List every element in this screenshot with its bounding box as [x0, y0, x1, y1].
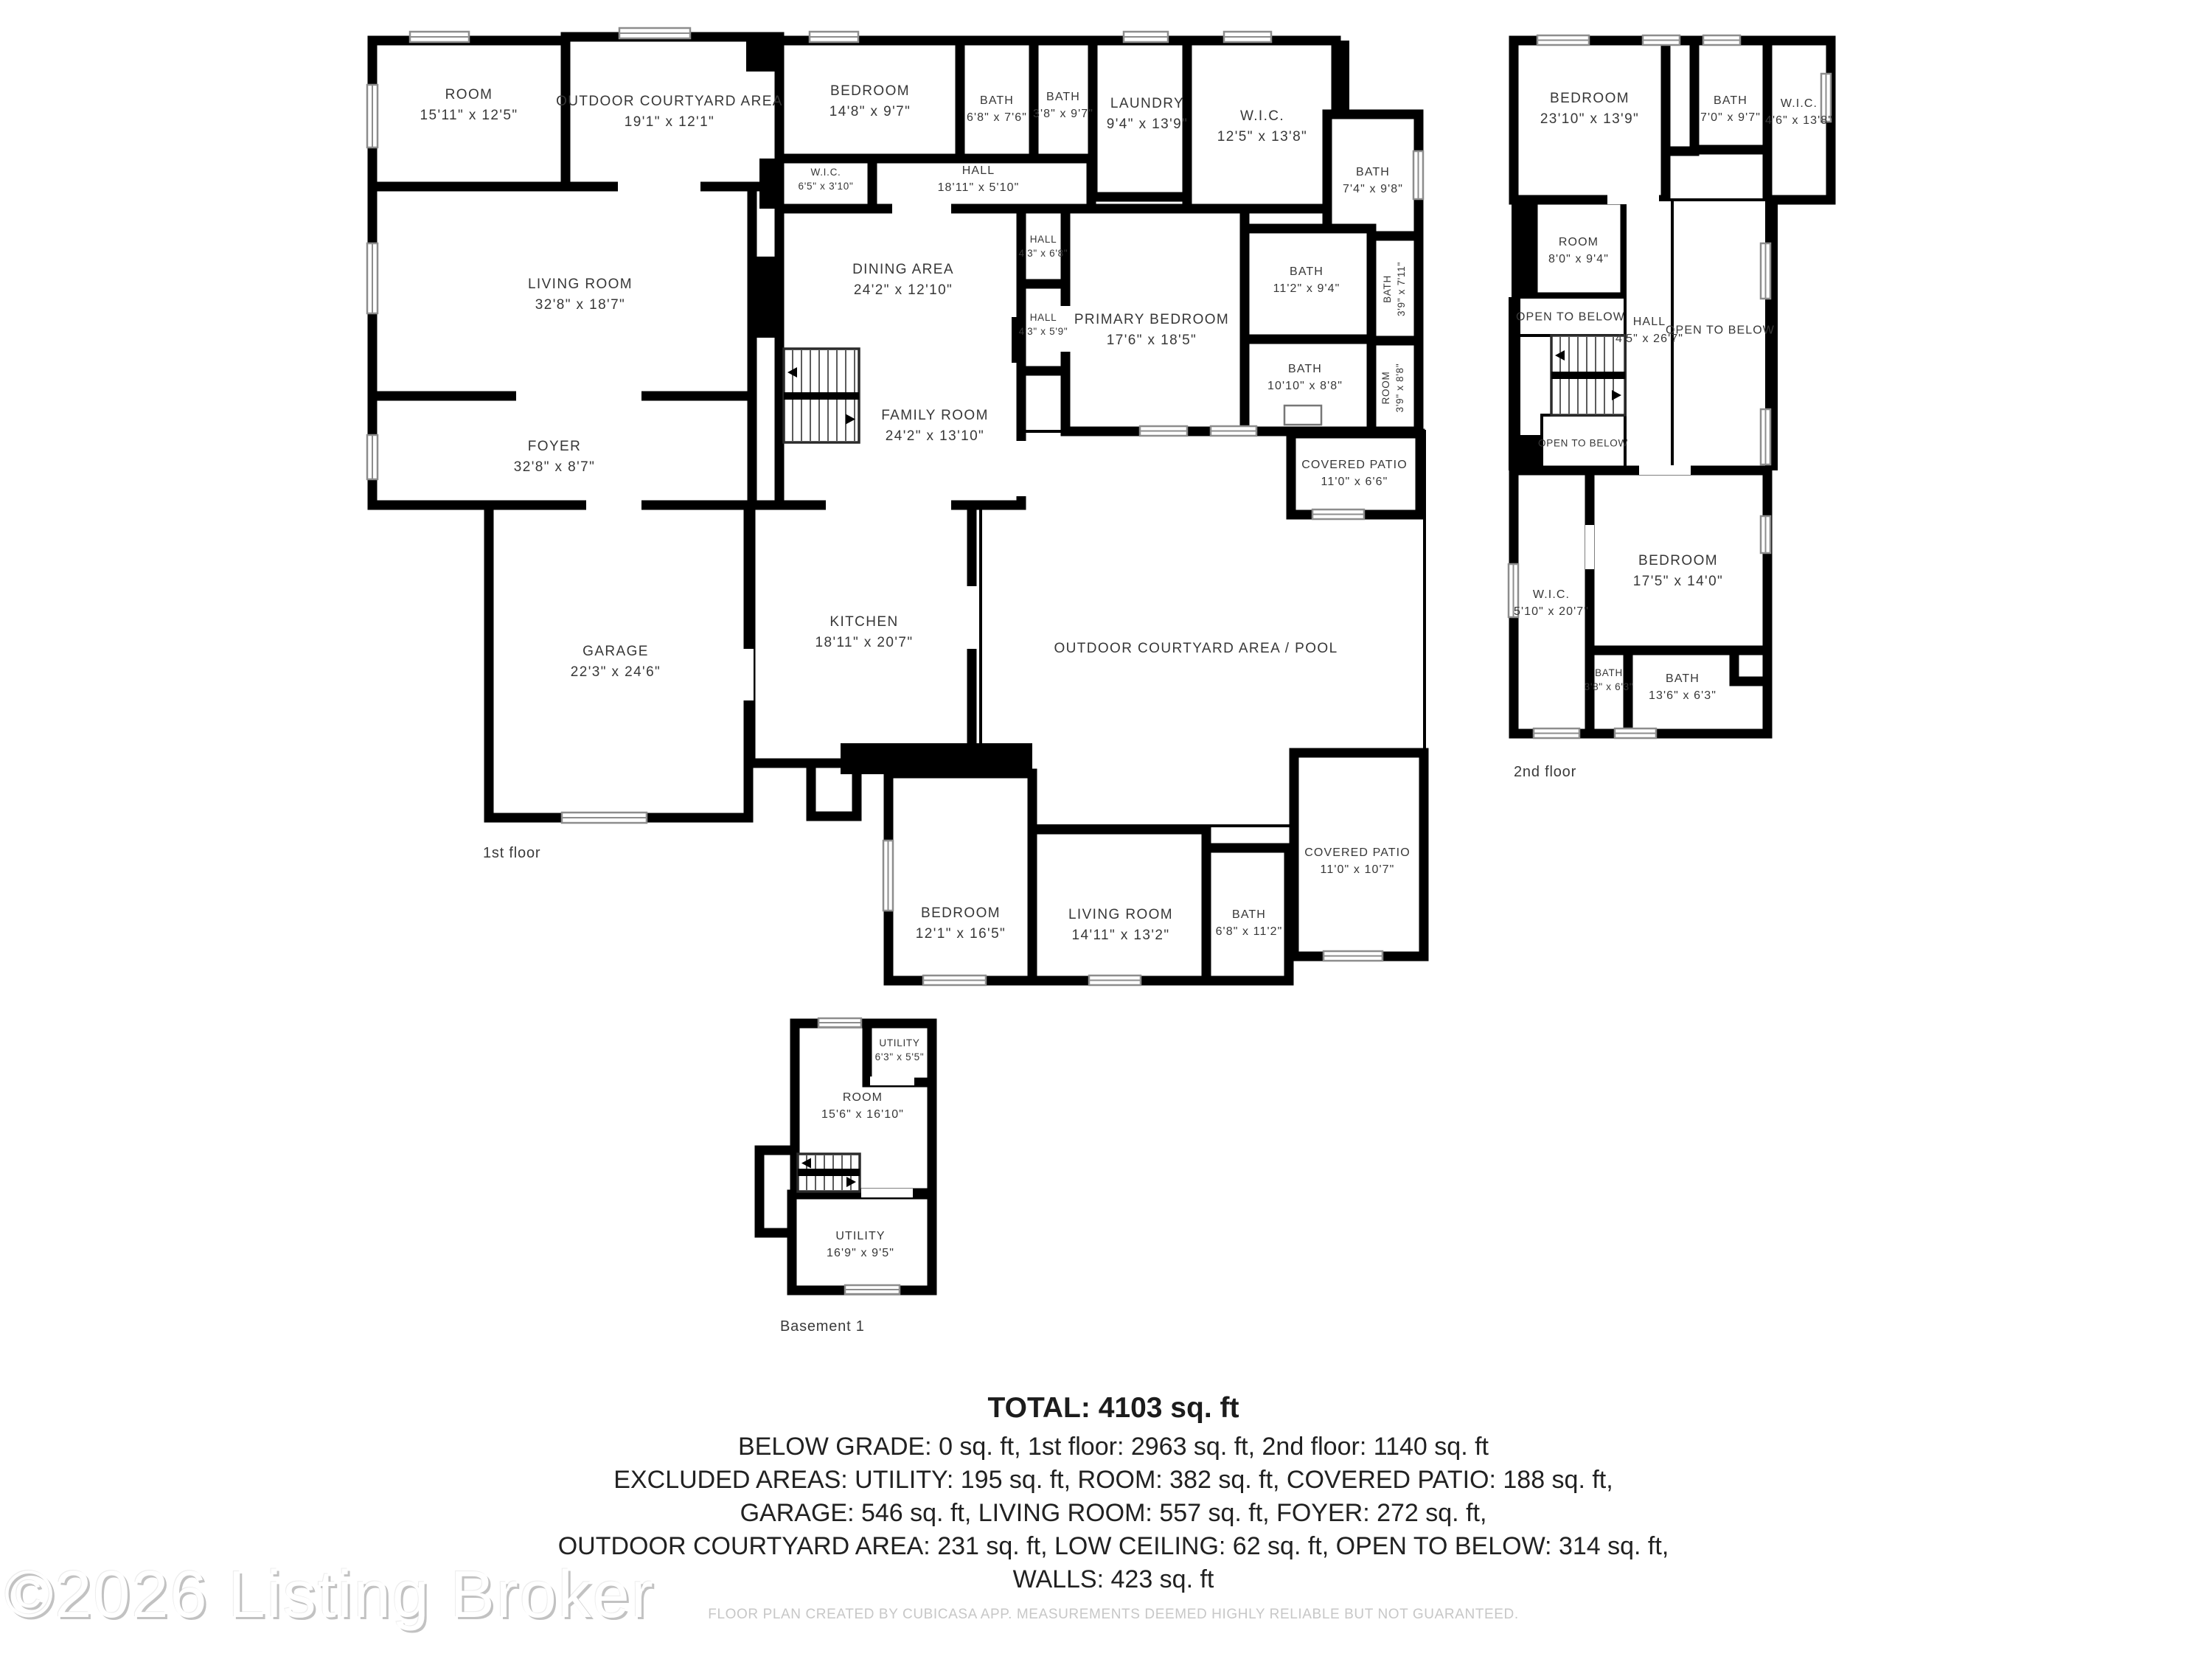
floor-label-2nd-floor: 2nd floor	[1514, 764, 1576, 781]
room-label-room: ROOM15'6" x 16'10"	[821, 1089, 904, 1123]
room-label-bedroom: BEDROOM12'1" x 16'5"	[916, 903, 1006, 945]
room-label-bath: BATH3'8" x 6'3"	[1585, 666, 1634, 694]
room-label-bath: BATH11'2" x 9'4"	[1273, 263, 1340, 297]
room-label-utility: UTILITY16'9" x 9'5"	[827, 1228, 894, 1262]
room-label-bedroom: BEDROOM17'5" x 14'0"	[1633, 551, 1723, 592]
room-label-kitchen: KITCHEN18'11" x 20'7"	[815, 612, 914, 653]
room-label-w-i-c: W.I.C.4'6" x 13'8"	[1765, 95, 1833, 129]
room-label-living-room: LIVING ROOM32'8" x 18'7"	[528, 274, 633, 316]
room-label-bath: BATH7'0" x 9'7"	[1700, 92, 1761, 126]
room-label-w-i-c: W.I.C.6'5" x 3'10"	[799, 165, 854, 193]
room-label-bath: BATH3'9" x 7'11"	[1380, 262, 1408, 316]
room-label-living-room: LIVING ROOM14'11" x 13'2"	[1068, 905, 1173, 946]
floor-label-1st-floor: 1st floor	[483, 845, 540, 862]
room-label-bath: BATH13'6" x 6'3"	[1649, 670, 1717, 704]
room-label-hall: HALL4'3" x 6'8"	[1019, 232, 1068, 260]
room-label-foyer: FOYER32'8" x 8'7"	[514, 437, 595, 478]
room-label-w-i-c: W.I.C.5'10" x 20'7"	[1514, 586, 1589, 620]
summary-line: GARAGE: 546 sq. ft, LIVING ROOM: 557 sq.…	[15, 1497, 2212, 1530]
room-label-bath: BATH3'8" x 9'7"	[1033, 88, 1093, 122]
room-label-covered-patio: COVERED PATIO11'0" x 6'6"	[1301, 456, 1408, 490]
summary-line: EXCLUDED AREAS: UTILITY: 195 sq. ft, ROO…	[15, 1464, 2212, 1497]
room-label-family-room: FAMILY ROOM24'2" x 13'10"	[881, 406, 989, 447]
room-label-room: ROOM15'11" x 12'5"	[420, 85, 518, 126]
room-label-open-to-below: OPEN TO BELOW	[1666, 322, 1775, 339]
room-label-open-to-below: OPEN TO BELOW	[1516, 309, 1625, 326]
room-label-bath: BATH6'8" x 11'2"	[1216, 906, 1283, 940]
room-label-bath: BATH6'8" x 7'6"	[967, 92, 1027, 126]
room-label-primary-bedroom: PRIMARY BEDROOM17'6" x 18'5"	[1074, 310, 1229, 351]
room-label-bath: BATH10'10" x 8'8"	[1267, 361, 1343, 394]
room-label-w-i-c: W.I.C.12'5" x 13'8"	[1217, 106, 1307, 147]
room-label-bedroom: BEDROOM14'8" x 9'7"	[829, 81, 911, 122]
total-area-text: TOTAL: 4103 sq. ft	[15, 1392, 2212, 1425]
room-label-hall: HALL18'11" x 5'10"	[938, 162, 1020, 196]
room-label-bath: BATH7'4" x 9'8"	[1343, 164, 1403, 198]
room-label-dining-area: DINING AREA24'2" x 12'10"	[852, 260, 954, 301]
floor-label-basement-1: Basement 1	[780, 1318, 865, 1335]
room-label-room: ROOM3'9" x 8'8"	[1379, 364, 1407, 413]
room-label-covered-patio: COVERED PATIO11'0" x 10'7"	[1304, 844, 1411, 878]
room-label-outdoor-courtyard-area: OUTDOOR COURTYARD AREA19'1" x 12'1"	[556, 91, 783, 133]
room-label-room: ROOM8'0" x 9'4"	[1548, 234, 1609, 268]
room-label-open-to-below: OPEN TO BELOW	[1538, 437, 1628, 451]
summary-line: BELOW GRADE: 0 sq. ft, 1st floor: 2963 s…	[15, 1430, 2212, 1464]
room-label-utility: UTILITY6'3" x 5'5"	[875, 1036, 925, 1064]
room-label-hall: HALL4'3" x 5'9"	[1019, 310, 1068, 338]
floorplan-page: { "watermark": "©2026 Listing Broker", "…	[0, 0, 2212, 1659]
room-label-garage: GARAGE22'3" x 24'6"	[571, 641, 661, 683]
room-label-laundry: LAUNDRY9'4" x 13'9"	[1107, 94, 1188, 135]
watermark: ©2026 Listing Broker	[4, 1557, 655, 1633]
room-label-bedroom: BEDROOM23'10" x 13'9"	[1540, 88, 1639, 130]
room-label-outdoor-courtyard-area-pool: OUTDOOR COURTYARD AREA / POOL	[1054, 639, 1338, 659]
